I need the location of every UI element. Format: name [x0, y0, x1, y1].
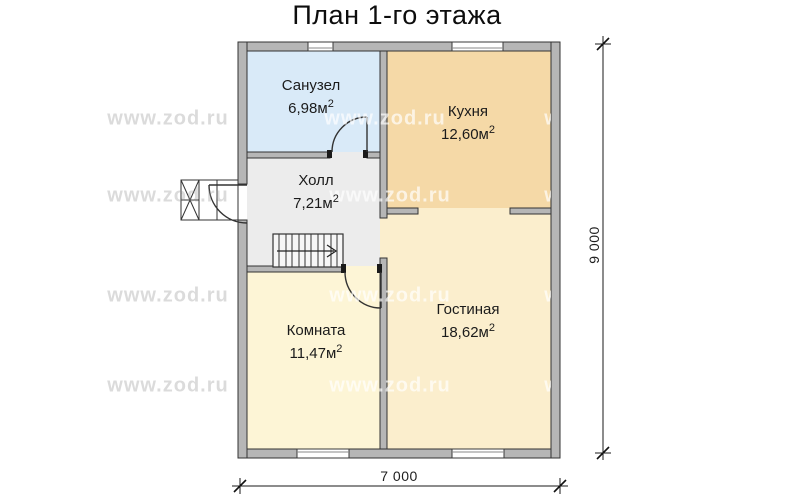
watermark: www.zod.ru	[324, 108, 445, 131]
kitchen-area: 12,60м2	[441, 121, 495, 144]
living-room-name: Гостиная	[437, 300, 500, 319]
watermark: www.zod.ru	[329, 285, 450, 308]
room-name: Комната	[287, 321, 346, 340]
kitchen-name: Кухня	[441, 102, 495, 121]
watermark: www.zod.ru	[544, 285, 551, 308]
wall-top	[238, 42, 308, 51]
wall-left	[238, 42, 247, 184]
hall-area: 7,21м2	[293, 190, 339, 213]
watermark: www.zod.ru	[107, 285, 228, 308]
watermark: www.zod.ru	[329, 375, 450, 398]
room-area: 11,47м2	[287, 340, 346, 363]
wall-left	[238, 220, 247, 458]
watermark: www.zod.ru	[107, 185, 228, 208]
bathroom-label: Санузел 6,98м2	[282, 76, 340, 118]
bathroom-window	[308, 42, 333, 51]
watermark: www.zod.ru	[329, 185, 450, 208]
bathroom-name: Санузел	[282, 76, 340, 95]
room-label: Комната 11,47м2	[287, 321, 346, 363]
living-room-label: Гостиная 18,62м2	[437, 300, 500, 342]
watermark: www.zod.ru	[107, 108, 228, 131]
bathroom-area: 6,98м2	[282, 95, 340, 118]
watermark: www.zod.ru	[544, 108, 551, 131]
horizontal-dimension-label: 7 000	[380, 468, 418, 484]
floor-plan-page: План 1-го этажа	[0, 0, 795, 496]
room-window	[297, 449, 349, 458]
wall-right	[551, 42, 560, 458]
living-room-area: 18,62м2	[437, 319, 500, 342]
watermark: www.zod.ru	[544, 185, 551, 208]
wall-top	[333, 42, 452, 51]
hall-label: Холл 7,21м2	[293, 171, 339, 213]
watermark: www.zod.ru	[544, 375, 551, 398]
hall-name: Холл	[293, 171, 339, 190]
vertical-dimension-label: 9 000	[586, 226, 602, 264]
watermark: www.zod.ru	[107, 375, 228, 398]
wall-bottom	[349, 449, 452, 458]
living-room-window	[452, 449, 504, 458]
kitchen-window	[452, 42, 503, 51]
kitchen-label: Кухня 12,60м2	[441, 102, 495, 144]
